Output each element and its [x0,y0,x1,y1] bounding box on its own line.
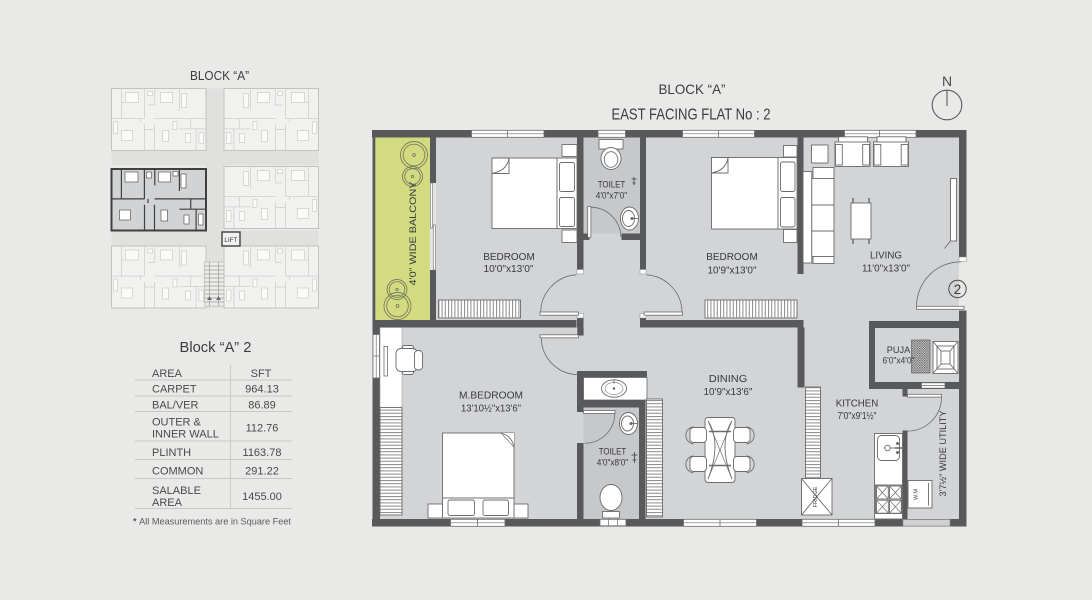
svg-text:DINING: DINING [709,373,748,385]
svg-text:TOILET: TOILET [599,447,627,458]
svg-text:964.13: 964.13 [245,384,279,396]
svg-text:KITCHEN: KITCHEN [836,398,879,410]
svg-text:EAST FACING FLAT No : 2: EAST FACING FLAT No : 2 [612,107,771,124]
svg-text:BLOCK “A”: BLOCK “A” [659,81,726,97]
svg-text:PLINTH: PLINTH [152,447,191,459]
svg-text:TOILET: TOILET [598,180,626,191]
svg-text:11'0"x13'0": 11'0"x13'0" [862,264,910,275]
svg-text:OUTER &: OUTER & [152,417,202,429]
svg-text:1455.00: 1455.00 [242,491,282,503]
svg-text:* All Measurements are in Squa: * All Measurements are in Square Feet [133,517,291,528]
svg-text:M.BEDROOM: M.BEDROOM [459,390,523,402]
svg-text:CARPET: CARPET [152,384,197,396]
svg-text:FRIDGE: FRIDGE [813,486,819,507]
svg-text:291.22: 291.22 [245,466,279,478]
svg-text:N: N [942,73,952,89]
svg-text:BAL/VER: BAL/VER [152,400,199,412]
svg-text:7'0"x9'1½": 7'0"x9'1½" [838,411,877,422]
svg-text:BEDROOM: BEDROOM [706,251,758,263]
svg-text:2: 2 [954,282,962,297]
svg-text:4'0" WIDE BALCONY: 4'0" WIDE BALCONY [408,181,419,286]
svg-text:10'9"x13'6": 10'9"x13'6" [704,387,753,398]
svg-text:PUJA: PUJA [887,345,911,356]
svg-text:LIVING: LIVING [870,250,902,262]
svg-text:10'0"x13'0": 10'0"x13'0" [484,264,534,275]
svg-text:1163.78: 1163.78 [243,447,282,459]
svg-text:Block “A” 2: Block “A” 2 [180,339,252,356]
svg-text:COMMON: COMMON [152,466,203,478]
svg-text:4'0"x7'0": 4'0"x7'0" [596,191,628,201]
svg-text:INNER WALL: INNER WALL [152,429,219,441]
svg-text:112.76: 112.76 [246,423,279,435]
svg-text:AREA: AREA [152,368,183,380]
svg-text:4'0"x8'0": 4'0"x8'0" [597,458,629,468]
svg-text:6'0"x4'0": 6'0"x4'0" [883,356,915,366]
svg-text:LIFT: LIFT [224,238,237,244]
svg-text:13'10½"x13'6": 13'10½"x13'6" [461,404,521,415]
svg-text:SALABLE: SALABLE [152,485,201,497]
svg-text:W.M: W.M [914,489,920,500]
svg-text:86.89: 86.89 [248,400,276,412]
svg-text:10'9"x13'0": 10'9"x13'0" [708,266,757,277]
svg-text:BEDROOM: BEDROOM [483,251,535,263]
svg-text:AREA: AREA [152,497,183,509]
svg-text:BLOCK “A”: BLOCK “A” [190,68,249,83]
svg-text:SFT: SFT [251,368,272,380]
svg-text:3'7½" WIDE UTILITY: 3'7½" WIDE UTILITY [938,410,949,497]
